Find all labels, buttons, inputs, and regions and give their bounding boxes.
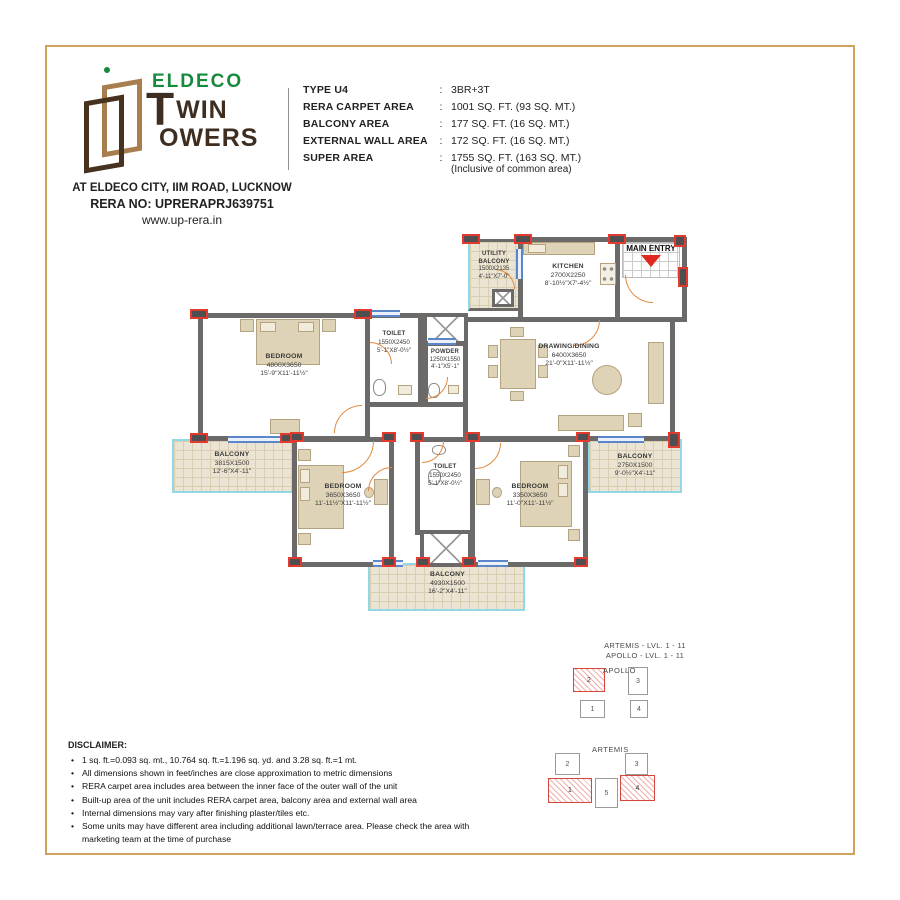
entry-arrow-icon <box>641 255 661 267</box>
room-label-bedroom-2: BEDROOM 3650X3650 11'-11½"X11'-11½" <box>288 483 398 509</box>
spec-label: BALCONY AREA <box>303 118 431 130</box>
wall-column <box>668 432 680 448</box>
wall-column <box>678 267 688 287</box>
wall-column <box>290 432 304 442</box>
room-label-drawing-dining: DRAWING/DINING 6400X3650 21'-0"X11'-11½" <box>506 343 632 369</box>
keyplan-unit: 3 <box>625 753 648 775</box>
disclaimer-item: Internal dimensions may vary after finis… <box>68 807 500 820</box>
washbasin <box>398 385 412 395</box>
wall-column <box>608 234 626 244</box>
window <box>228 436 280 443</box>
wordmark-owers: OWERS <box>159 126 258 151</box>
nightstand <box>298 533 311 545</box>
keyplan-header: ARTEMIS - LVL. 1 - 11 APOLLO - LVL. 1 - … <box>565 641 725 661</box>
pillow <box>298 322 314 332</box>
twin-windows-logo-icon <box>80 82 142 174</box>
address-line: AT ELDECO CITY, IIM ROAD, LUCKNOW <box>62 182 302 194</box>
wall-column <box>416 557 430 567</box>
room-label-toilet-top: TOILET 1550X2450 5'-1"X8'-0½" <box>365 330 423 356</box>
wall-column <box>462 234 480 244</box>
room-label-powder: POWDER 1250X1550 4'-1"X5'-1" <box>420 349 470 372</box>
nightstand <box>568 529 580 541</box>
wall-column <box>674 235 686 247</box>
keyplan-unit: 2 <box>555 753 580 775</box>
disclaimer-item: Built-up area of the unit includes RERA … <box>68 794 500 807</box>
room-label-toilet-middle: TOILET 1550X2450 5'-1"X8'-0½" <box>416 463 474 489</box>
disclaimer-item: 1 sq. ft.=0.093 sq. mt., 10.764 sq. ft.=… <box>68 754 500 767</box>
wall-column <box>190 309 208 319</box>
wall-column <box>382 432 396 442</box>
nightstand <box>240 319 254 332</box>
wall-column <box>466 432 480 442</box>
wall-column <box>382 557 396 567</box>
brand-logo: ELDECO T WIN OWERS <box>80 72 280 174</box>
artemis-label: ARTEMIS <box>592 745 629 754</box>
disclaimer-list: 1 sq. ft.=0.093 sq. mt., 10.764 sq. ft.=… <box>68 754 500 846</box>
room-label-bedroom-3: BEDROOM 3350X3650 11'-0"X11'-11½" <box>474 483 586 509</box>
window <box>478 560 508 567</box>
brochure-page: { "header": { "logo": { "eldeco": "ELDEC… <box>0 0 900 900</box>
wall-column <box>462 557 476 567</box>
chair <box>488 365 498 378</box>
disclaimer-item: Some units may have different area inclu… <box>68 820 500 846</box>
pillow <box>260 322 276 332</box>
wc <box>373 379 386 396</box>
spec-value: 3BR+3T <box>451 84 581 96</box>
rera-number: RERA NO: UPRERAPRJ639751 <box>62 197 302 211</box>
website: www.up-rera.in <box>62 213 302 227</box>
keyplan-apollo: APOLLO 2 3 1 4 <box>548 665 678 727</box>
spec-label: TYPE U4 <box>303 84 431 96</box>
spec-value: 1001 SQ. FT. (93 SQ. MT.) <box>451 101 581 113</box>
sofa <box>648 342 664 404</box>
main-entry-label: MAIN ENTRY <box>620 244 682 267</box>
wordmark-win: WIN <box>176 98 228 123</box>
unit-spec-table: TYPE U4 : 3BR+3T RERA CARPET AREA : 1001… <box>303 84 581 175</box>
wall-column <box>410 432 424 442</box>
disclaimer-item: RERA carpet area includes area between t… <box>68 780 500 793</box>
address-block: AT ELDECO CITY, IIM ROAD, LUCKNOW RERA N… <box>62 182 302 227</box>
spec-value: 177 SQ. FT. (16 SQ. MT.) <box>451 118 581 130</box>
apollo-label: APOLLO <box>603 666 636 675</box>
header-divider <box>288 88 289 170</box>
nightstand <box>568 445 580 457</box>
spec-label: RERA CARPET AREA <box>303 101 431 113</box>
disclaimer-title: DISCLAIMER: <box>68 740 500 750</box>
window <box>598 436 644 443</box>
keyplan-unit: 5 <box>595 778 618 808</box>
wall-column <box>574 557 588 567</box>
pillow <box>300 469 310 483</box>
sofa <box>558 415 624 431</box>
nightstand <box>298 449 311 461</box>
room-label-balcony-left: BALCONY 3815X1500 12'-6"X4'-11" <box>182 451 282 477</box>
room-label-balcony-bottom: BALCONY 4930X1500 16'-2"X4'-11" <box>375 571 520 597</box>
chair <box>510 391 524 401</box>
nightstand <box>322 319 336 332</box>
wall-column <box>190 433 208 443</box>
spec-value: 1755 SQ. FT. (163 SQ. MT.) (Inclusive of… <box>451 152 581 175</box>
rug <box>592 365 622 395</box>
keyplan-unit: 4 <box>620 775 655 801</box>
chair <box>510 327 524 337</box>
pillow <box>558 465 568 479</box>
wall-column <box>576 432 590 442</box>
window <box>428 338 456 345</box>
window <box>516 249 523 279</box>
room-label-bedroom-1: BEDROOM 4800X3650 15'-9"X11'-11½" <box>228 353 340 379</box>
wordmark-t: T <box>146 92 175 128</box>
window <box>370 310 400 317</box>
disclaimer-item: All dimensions shown in feet/inches are … <box>68 767 500 780</box>
keyplan-unit: 4 <box>630 700 648 718</box>
green-dot-icon <box>104 67 110 73</box>
side-table <box>628 413 642 427</box>
room-label-kitchen: KITCHEN 2700X2250 8'-10½"X7'-4½" <box>522 263 614 289</box>
kitchen-sink <box>528 244 546 253</box>
keyplan-unit: 2 <box>573 668 605 692</box>
keyplan-artemis: ARTEMIS 2 3 1 5 4 <box>548 745 678 807</box>
room-label-balcony-right: BALCONY 2750X1500 9'-0½"X4'-11" <box>590 453 680 479</box>
wall-column <box>288 557 302 567</box>
washbasin <box>448 385 459 394</box>
spec-value: 172 SQ. FT. (16 SQ. MT.) <box>451 135 581 147</box>
spec-label: EXTERNAL WALL AREA <box>303 135 431 147</box>
shaft-utility <box>492 289 514 307</box>
keyplan-unit: 1 <box>548 778 592 803</box>
keyplan-unit: 1 <box>580 700 605 718</box>
floor-plan: MAIN ENTRY <box>170 227 715 619</box>
disclaimer: DISCLAIMER: 1 sq. ft.=0.093 sq. mt., 10.… <box>68 740 500 846</box>
wall-column <box>514 234 532 244</box>
room-label-utility-balcony: UTILITY BALCONY 1500X2135 4'-11"X7'-0" <box>466 251 522 281</box>
spec-note: (Inclusive of common area) <box>451 164 581 175</box>
brand-wordmark: ELDECO T WIN OWERS <box>146 72 258 151</box>
wall-column <box>354 309 372 319</box>
chair <box>488 345 498 358</box>
spec-label: SUPER AREA <box>303 152 431 175</box>
